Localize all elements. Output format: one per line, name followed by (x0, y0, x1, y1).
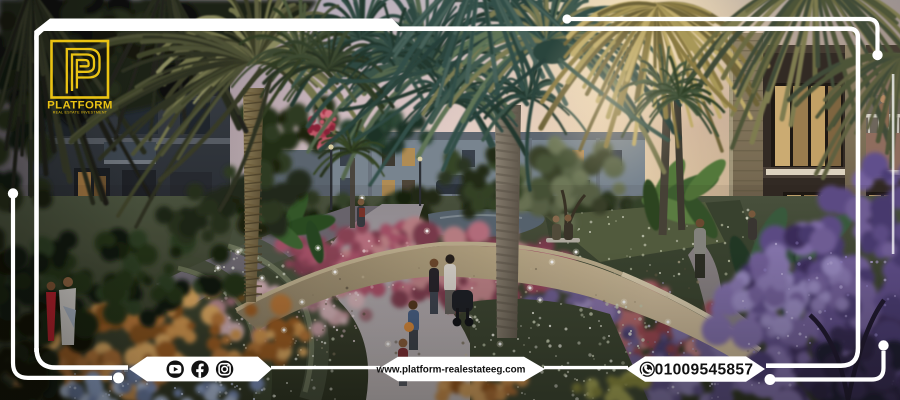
svg-text:REAL ESTATE INVESTMENT: REAL ESTATE INVESTMENT (53, 111, 108, 115)
svg-text:www.platform-realestateeg.com: www.platform-realestateeg.com (376, 365, 526, 376)
svg-text:01009545857: 01009545857 (655, 361, 754, 378)
